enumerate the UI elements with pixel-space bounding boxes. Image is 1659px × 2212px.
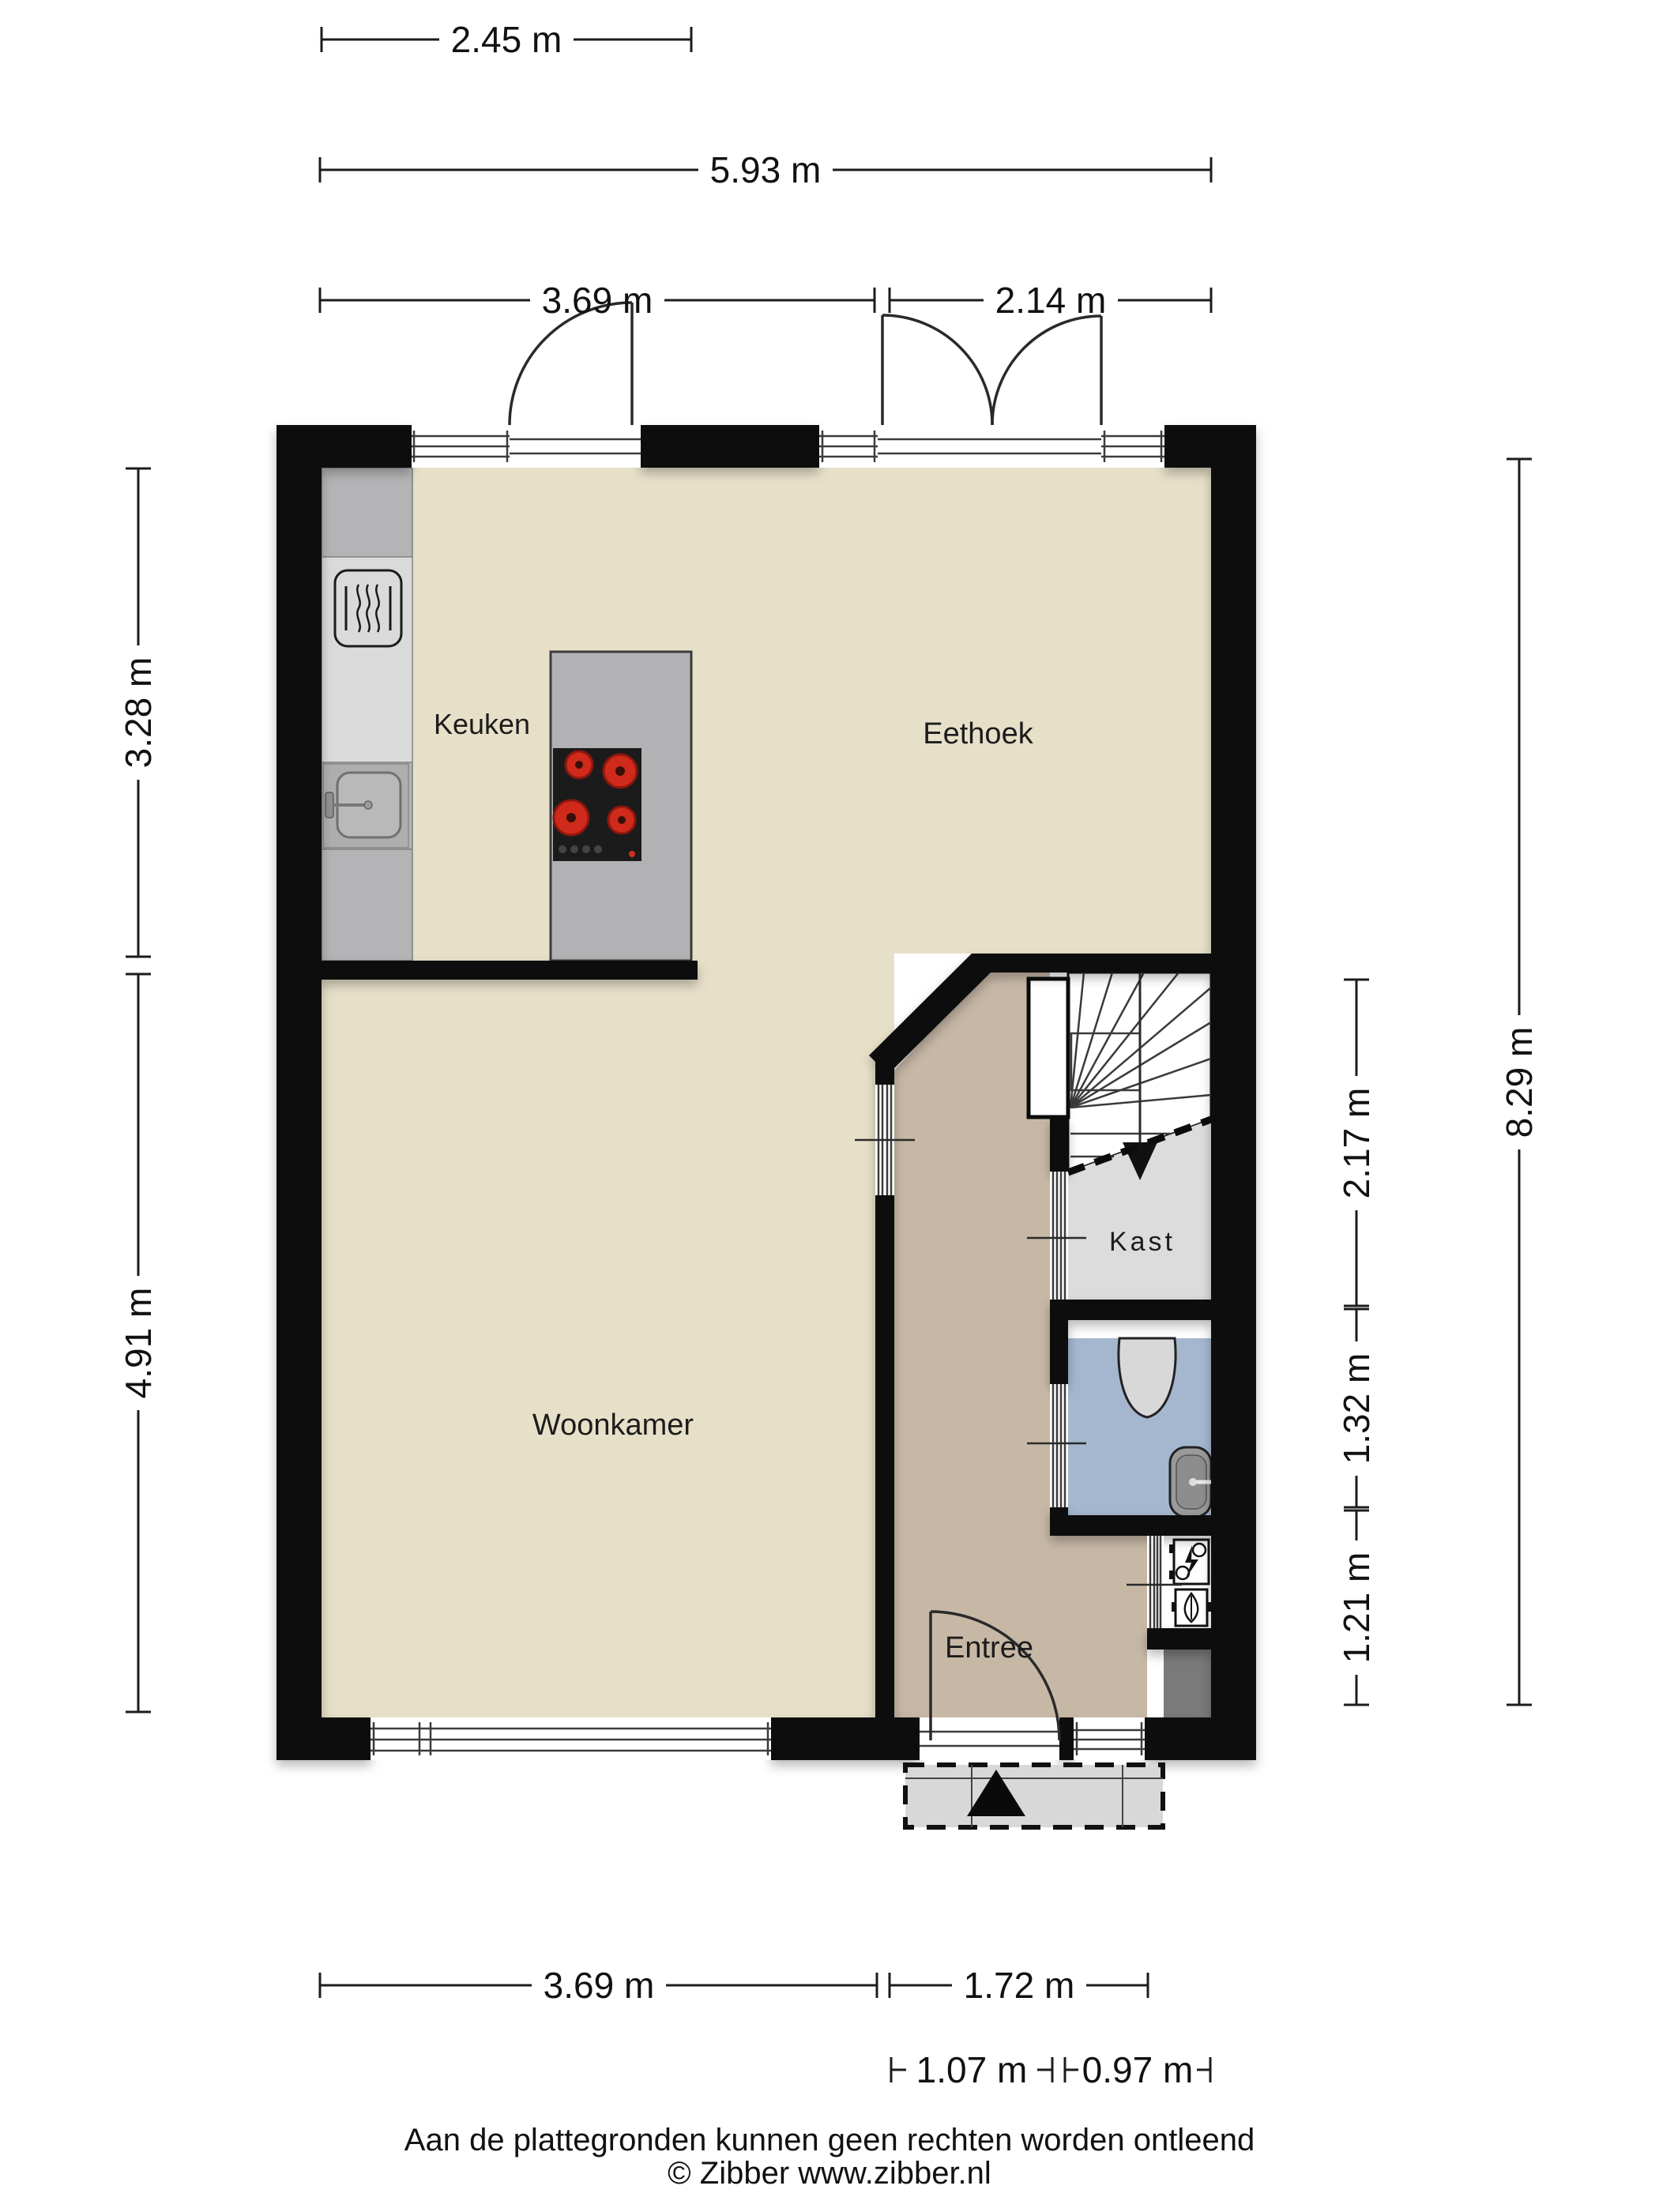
dim-top-left-width: 3.69 m [320, 280, 875, 321]
dim-top-right-width: 2.14 m [890, 280, 1211, 321]
wall-toilet-bottom [1050, 1515, 1211, 1536]
electric-meter-icon [1169, 1540, 1209, 1584]
dim-top-total-width: 5.93 m [320, 149, 1211, 190]
footer-copyright: © Zibber www.zibber.nl [668, 2156, 991, 2191]
wall-dining-entry [972, 954, 1211, 972]
stair-access-opening [1029, 979, 1068, 1117]
window-kitchen [412, 425, 510, 468]
label-dining: Eethoek [923, 717, 1033, 750]
footer-disclaimer: Aan de plattegronden kunnen geen rechten… [404, 2123, 1255, 2157]
dim-left-living-depth: 4.91 m [118, 974, 159, 1712]
footer: Aan de plattegronden kunnen geen rechten… [404, 2123, 1255, 2191]
washbasin-icon [1170, 1447, 1211, 1517]
porch-area [905, 1765, 1163, 1827]
entrance-porch [905, 1765, 1163, 1827]
svg-text:2.17 m: 2.17 m [1336, 1088, 1377, 1199]
dim-right-total-depth: 8.29 m [1499, 459, 1540, 1705]
window-dining-left [819, 425, 878, 468]
window-living [371, 1717, 771, 1760]
window-dining-right [1101, 425, 1164, 468]
dim-bottom-entry-width: 1.72 m [890, 1965, 1148, 2006]
sink-icon [325, 773, 401, 837]
svg-text:1.21 m: 1.21 m [1336, 1552, 1377, 1664]
stove-icon [553, 748, 641, 861]
wall-entry-stairs-a [1050, 1117, 1068, 1172]
svg-text:0.97 m: 0.97 m [1082, 2049, 1194, 2090]
label-kitchen: Keuken [434, 708, 530, 740]
door-dining-double [878, 315, 1101, 468]
svg-text:1.07 m: 1.07 m [916, 2049, 1028, 2090]
wall-bottom-mid [771, 1717, 920, 1760]
dim-right-meter-depth: 1.21 m [1336, 1510, 1377, 1705]
svg-text:5.93 m: 5.93 m [710, 149, 822, 190]
dim-bottom-porch-right: 0.97 m [1065, 2049, 1210, 2090]
wall-door-jamb [1059, 1717, 1074, 1760]
living-room-floor [322, 961, 894, 1717]
label-living: Woonkamer [532, 1409, 694, 1442]
dim-bottom-porch-left: 1.07 m [891, 2049, 1052, 2090]
door-kitchen-garden [510, 303, 641, 468]
dim-right-stairs-depth: 2.17 m [1336, 980, 1377, 1306]
wall-bottom-right [1145, 1717, 1256, 1760]
meter-cupboard [1169, 1540, 1211, 1626]
wall-kitchen-living [322, 961, 698, 980]
wall-closet-toilet [1050, 1300, 1211, 1320]
dim-bottom-living-width: 3.69 m [320, 1965, 877, 2006]
svg-text:3.69 m: 3.69 m [544, 1965, 655, 2006]
floor-plan: Keuken Eethoek Woonkamer Entree Kast 2.4… [0, 0, 1659, 2212]
wall-right [1211, 425, 1256, 1760]
svg-text:3.28 m: 3.28 m [118, 657, 159, 769]
label-closet: Kast [1109, 1227, 1176, 1257]
wall-top-pier [641, 425, 819, 468]
svg-text:1.72 m: 1.72 m [964, 1965, 1075, 2006]
dim-right-toilet-depth: 1.32 m [1336, 1309, 1377, 1507]
duct-shaft [1164, 1650, 1211, 1717]
wall-meter-bottom [1147, 1628, 1211, 1650]
window-entry-sidelight [1074, 1717, 1145, 1760]
svg-text:2.14 m: 2.14 m [995, 280, 1107, 321]
wall-bottom-left [276, 1717, 371, 1760]
gas-meter-icon [1172, 1589, 1211, 1626]
dim-left-kitchen-depth: 3.28 m [118, 468, 159, 957]
wall-left [276, 425, 322, 1760]
svg-text:8.29 m: 8.29 m [1499, 1027, 1540, 1138]
dim-top-kitchen-width: 2.45 m [322, 19, 691, 60]
label-entry: Entree [945, 1631, 1033, 1665]
svg-text:2.45 m: 2.45 m [451, 19, 562, 60]
svg-text:3.69 m: 3.69 m [542, 280, 653, 321]
svg-text:1.32 m: 1.32 m [1336, 1353, 1377, 1465]
svg-text:4.91 m: 4.91 m [118, 1288, 159, 1399]
